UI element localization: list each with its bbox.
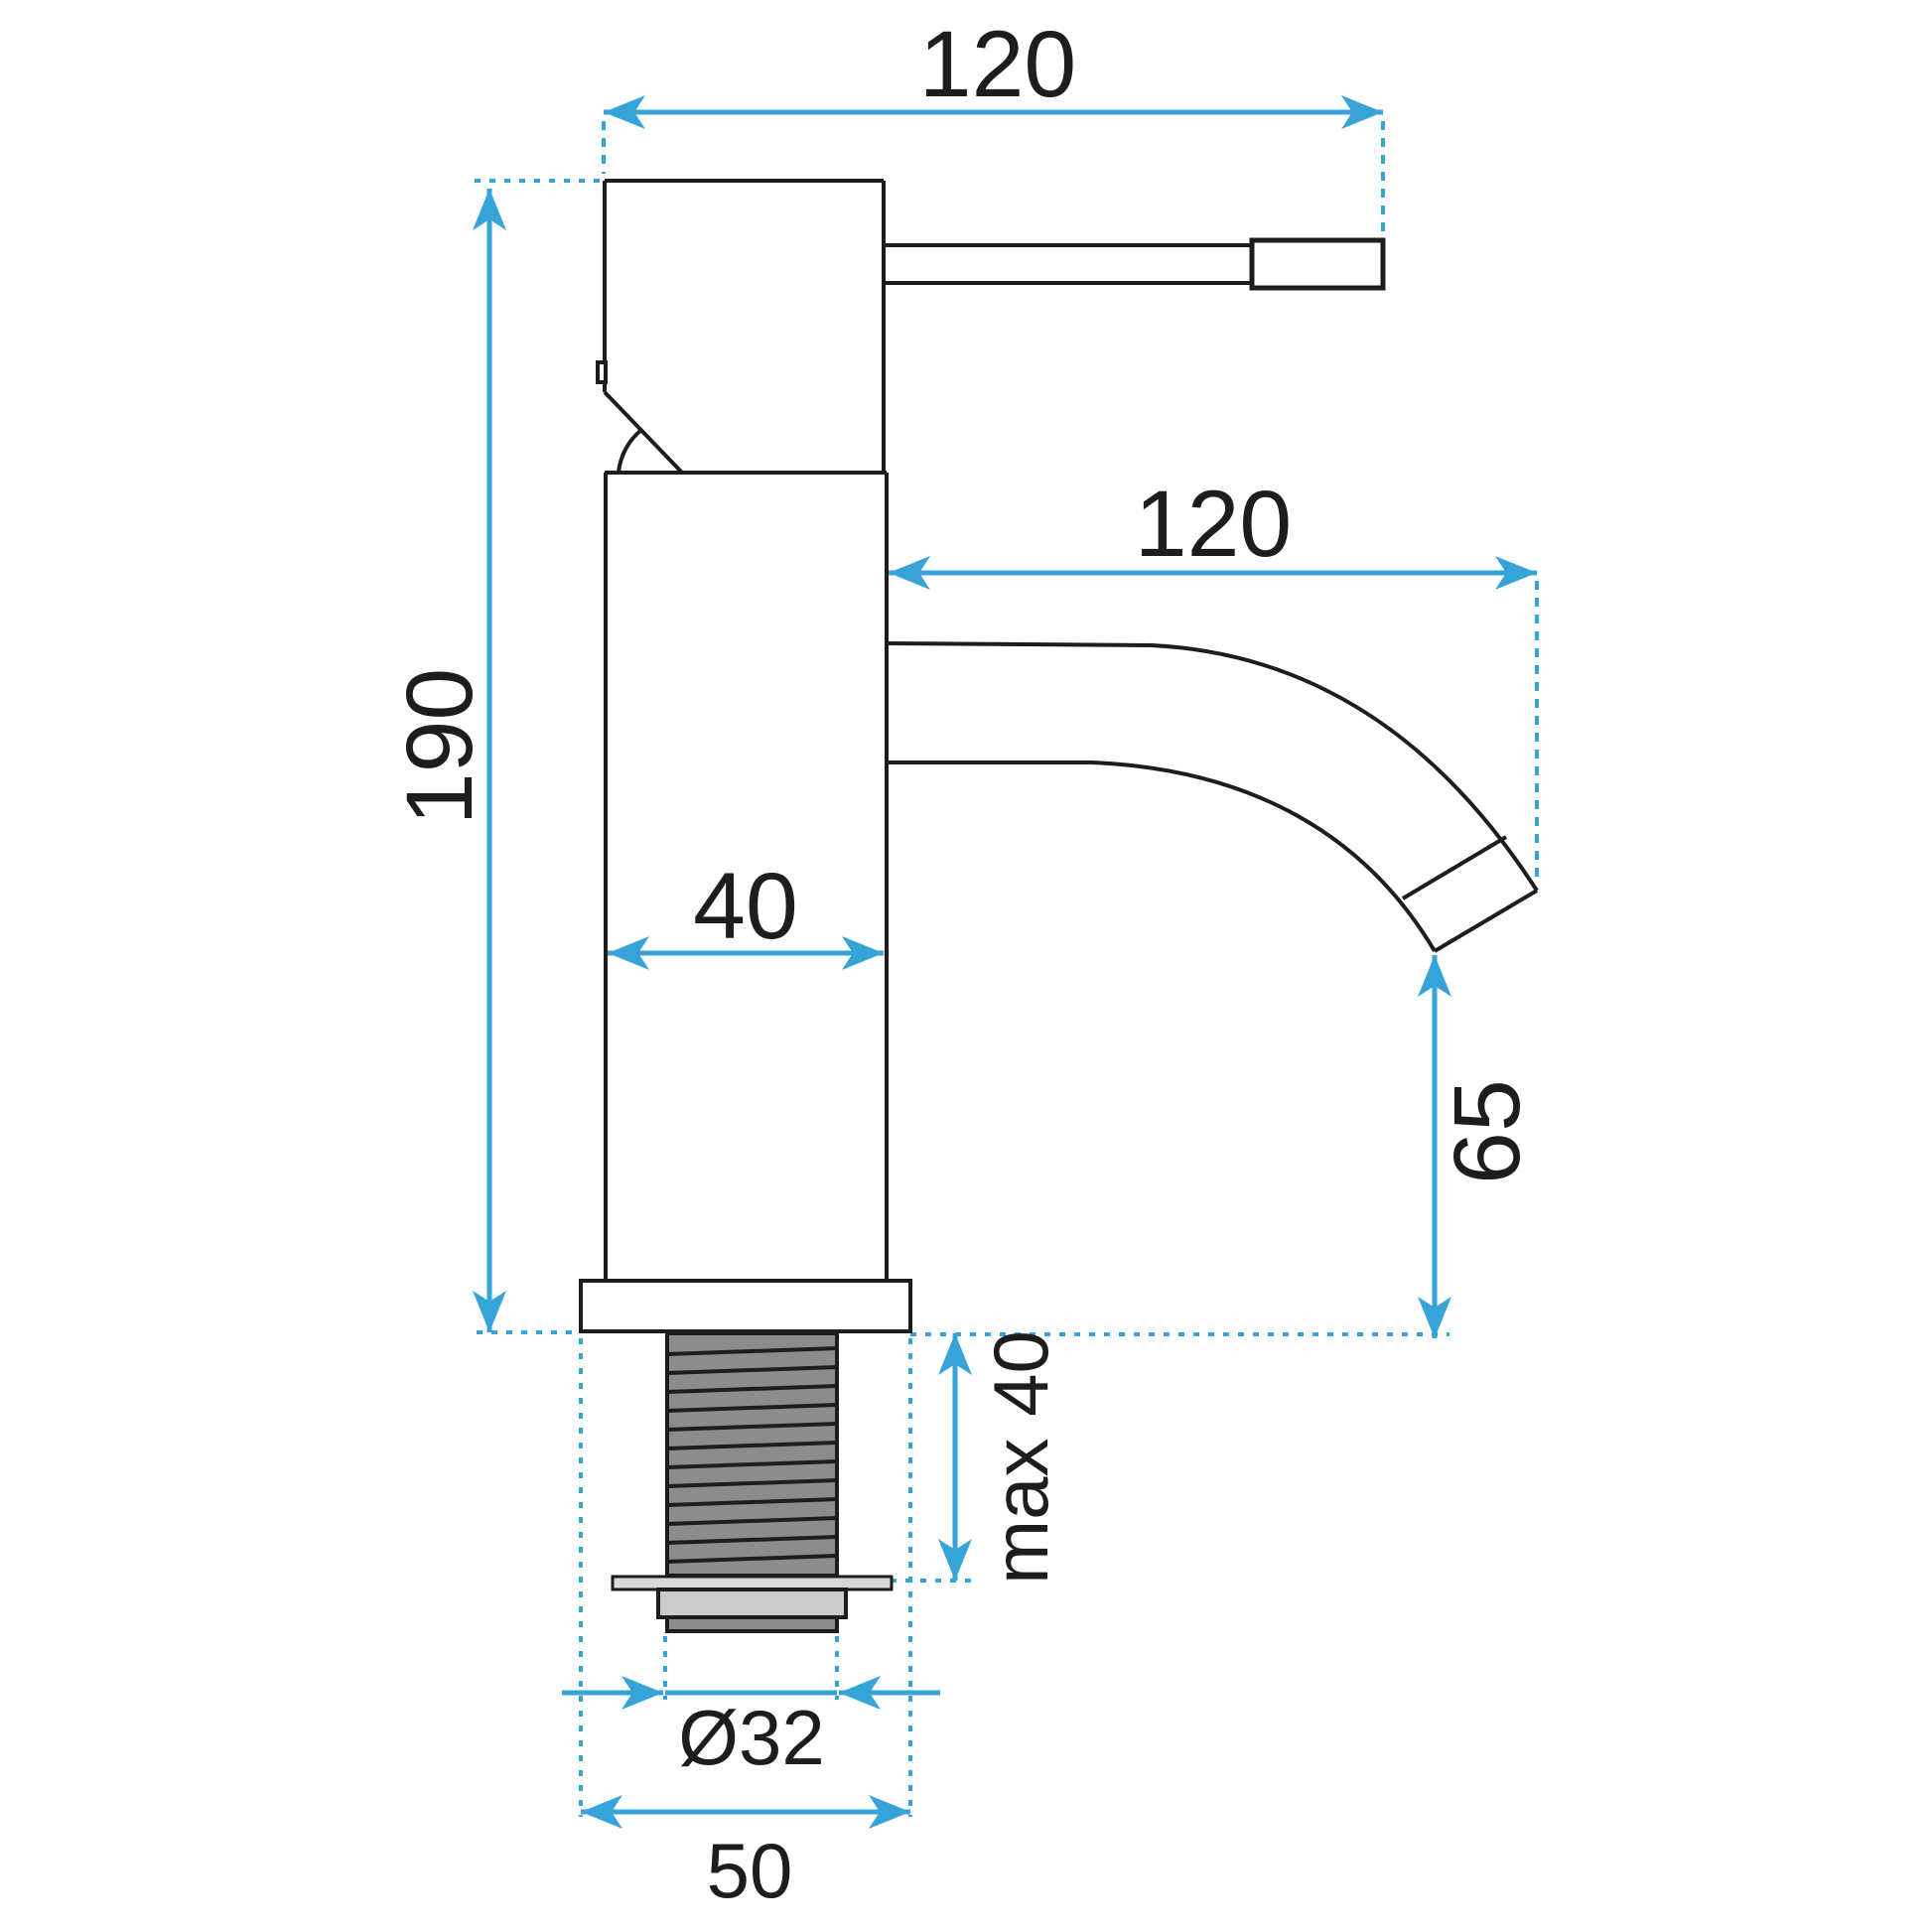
spout-end-face [1435, 891, 1537, 951]
cartridge-notch [598, 362, 606, 382]
shank-end [667, 1617, 837, 1631]
thread-diameter-label: Ø32 [678, 1694, 824, 1781]
lock-nut [658, 1589, 846, 1617]
handle-reach-label: 120 [919, 12, 1077, 117]
total-height-label: 190 [387, 668, 492, 826]
spout-bottom-curve [887, 762, 1435, 951]
faucet-technical-drawing: 120 120 190 40 65 max 40 Ø32 50 [0, 0, 1932, 1932]
lever-pivot-arc [619, 430, 641, 473]
base-width-label: 50 [707, 1827, 793, 1914]
body-width-label: 40 [693, 854, 798, 959]
aerator-line [1403, 837, 1506, 898]
spout-top-curve [887, 643, 1537, 891]
technical-drawing-page: 120 120 190 40 65 max 40 Ø32 50 [0, 0, 1932, 1932]
base-plate [581, 1281, 910, 1331]
lever-underside-diagonal [605, 392, 682, 473]
max-mounting-depth-label: max 40 [977, 1330, 1064, 1585]
dimension-labels: 120 120 190 40 65 max 40 Ø32 50 [387, 12, 1540, 1914]
spout-reach-label: 120 [1135, 472, 1293, 577]
spout-outlet-height-label: 65 [1435, 1079, 1540, 1184]
handle-grip [1252, 240, 1383, 288]
